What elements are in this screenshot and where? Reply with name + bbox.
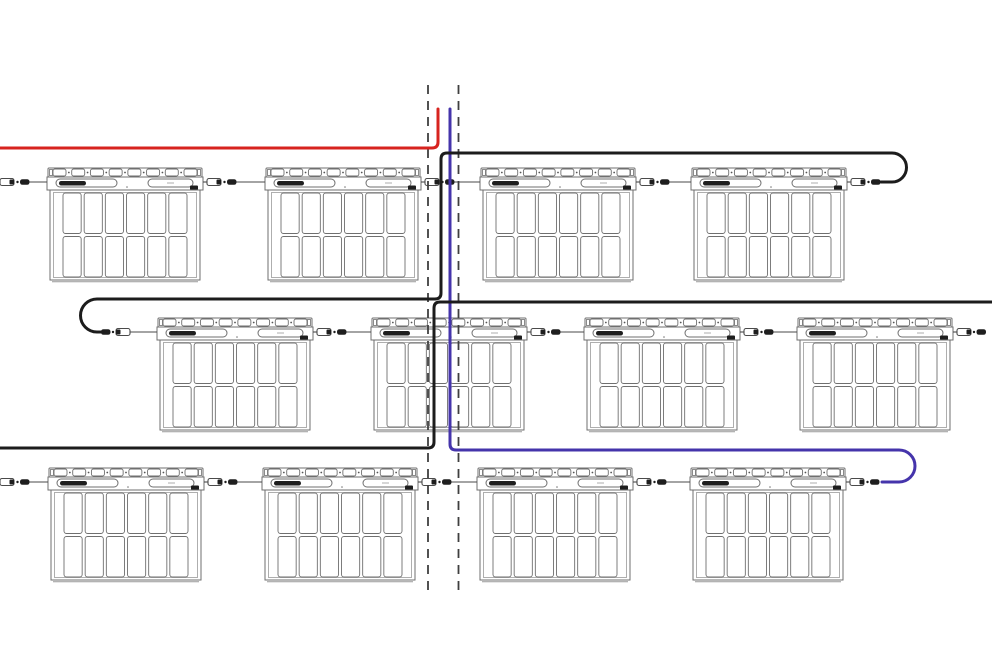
junction-box-label bbox=[489, 481, 516, 486]
pv-cell bbox=[237, 387, 255, 428]
pv-cell bbox=[664, 387, 682, 428]
pv-cell bbox=[877, 343, 895, 384]
pv-cell bbox=[792, 193, 810, 234]
rail-clamp-tab bbox=[539, 469, 552, 476]
pv-cell bbox=[493, 493, 511, 534]
pv-cell bbox=[387, 387, 405, 428]
pv-cell bbox=[496, 237, 514, 278]
pv-cell bbox=[517, 237, 535, 278]
pv-cell bbox=[215, 343, 233, 384]
pv-cell bbox=[127, 193, 145, 234]
pv-cell bbox=[387, 193, 405, 234]
rail-clamp-tab bbox=[53, 169, 66, 176]
mc4-connector-pair bbox=[847, 179, 881, 186]
rail-clamp-tab bbox=[483, 469, 496, 476]
pv-cell bbox=[792, 237, 810, 278]
rail-clamp-tab bbox=[238, 319, 251, 326]
pv-cell bbox=[320, 537, 338, 578]
rail-clamp-tab bbox=[185, 469, 198, 476]
rail-clamp-tab bbox=[91, 469, 104, 476]
pv-cell bbox=[919, 387, 937, 428]
solar-panel bbox=[691, 168, 847, 282]
pv-cell bbox=[194, 387, 212, 428]
mc4-connector-pair bbox=[633, 479, 690, 486]
pv-cell bbox=[898, 343, 916, 384]
rail-clamp-tab bbox=[166, 469, 179, 476]
band-end-block bbox=[834, 186, 842, 191]
mc4-connector-pair bbox=[101, 329, 157, 336]
solar-panel bbox=[690, 468, 846, 582]
pv-cell bbox=[599, 537, 617, 578]
mc4-connector-pair bbox=[527, 329, 584, 336]
rail-clamp-tab bbox=[790, 469, 803, 476]
pv-cell bbox=[600, 343, 618, 384]
pv-cell bbox=[302, 193, 320, 234]
rail-clamp-tab bbox=[184, 169, 197, 176]
pv-cell bbox=[748, 493, 766, 534]
pv-cell bbox=[771, 193, 789, 234]
pv-cell bbox=[855, 343, 873, 384]
rail-clamp-tab bbox=[380, 469, 393, 476]
pv-cell bbox=[557, 493, 575, 534]
rail-clamp-tab bbox=[772, 169, 785, 176]
pv-cell bbox=[834, 387, 852, 428]
pv-cell bbox=[791, 493, 809, 534]
pv-cell bbox=[148, 237, 166, 278]
junction-box-label bbox=[60, 481, 87, 486]
pv-cell bbox=[557, 537, 575, 578]
pv-cell bbox=[514, 493, 532, 534]
mc4-connector-pair bbox=[203, 179, 265, 186]
rail-clamp-tab bbox=[268, 469, 281, 476]
pv-cell bbox=[342, 493, 360, 534]
pv-cell bbox=[64, 537, 82, 578]
rail-clamp-tab bbox=[897, 319, 910, 326]
pv-cell bbox=[706, 493, 724, 534]
rail-clamp-tab bbox=[878, 319, 891, 326]
rail-clamp-tab bbox=[327, 169, 340, 176]
pv-cell bbox=[127, 237, 145, 278]
pv-cell bbox=[493, 387, 511, 428]
band-end-block bbox=[405, 486, 413, 491]
pv-cell bbox=[215, 387, 233, 428]
rail-clamp-tab bbox=[734, 169, 747, 176]
pv-cell bbox=[538, 193, 556, 234]
pv-cell bbox=[877, 387, 895, 428]
rail-clamp-tab bbox=[577, 469, 590, 476]
pv-cell bbox=[621, 343, 639, 384]
junction-box-label bbox=[809, 331, 836, 336]
pv-cell bbox=[599, 493, 617, 534]
pv-cell bbox=[771, 237, 789, 278]
rail-clamp-tab bbox=[598, 169, 611, 176]
band-end-block bbox=[514, 336, 522, 341]
rail-clamp-tab bbox=[396, 319, 409, 326]
rail-clamp-tab bbox=[402, 169, 415, 176]
rail-clamp-tab bbox=[771, 469, 784, 476]
rail-clamp-tab bbox=[377, 319, 390, 326]
junction-box-label bbox=[383, 331, 410, 336]
rail-clamp-tab bbox=[362, 469, 375, 476]
rail-clamp-tab bbox=[489, 319, 502, 326]
pv-cell bbox=[128, 537, 146, 578]
pv-cell bbox=[621, 387, 639, 428]
pv-cell bbox=[472, 387, 490, 428]
rail-clamp-tab bbox=[684, 319, 697, 326]
pv-cell bbox=[345, 193, 363, 234]
pv-cell bbox=[128, 493, 146, 534]
rail-clamp-tab bbox=[803, 319, 816, 326]
band-end-block bbox=[623, 186, 631, 191]
pv-cell bbox=[84, 237, 102, 278]
rail-clamp-tab bbox=[271, 169, 284, 176]
rail-clamp-tab bbox=[627, 319, 640, 326]
pv-cell bbox=[169, 193, 187, 234]
solar-panel bbox=[477, 468, 633, 582]
rail-clamp-tab bbox=[324, 469, 337, 476]
pv-cell bbox=[342, 537, 360, 578]
rail-clamp-tab bbox=[346, 169, 359, 176]
rail-clamp-tab bbox=[827, 469, 840, 476]
mc4-connector-pair bbox=[953, 329, 986, 336]
pv-cell bbox=[173, 387, 191, 428]
pv-cell bbox=[387, 343, 405, 384]
pv-cell bbox=[472, 343, 490, 384]
pv-cell bbox=[149, 537, 167, 578]
solar-panel bbox=[262, 468, 418, 582]
pv-cell bbox=[408, 343, 426, 384]
pv-cell bbox=[602, 193, 620, 234]
rail-clamp-tab bbox=[163, 319, 176, 326]
rail-clamp-tab bbox=[486, 169, 499, 176]
rail-clamp-tab bbox=[808, 469, 821, 476]
rail-clamp-tab bbox=[182, 319, 195, 326]
pv-cell bbox=[514, 537, 532, 578]
pv-cell bbox=[384, 493, 402, 534]
pv-cell bbox=[451, 387, 469, 428]
rail-clamp-tab bbox=[840, 319, 853, 326]
pv-cell bbox=[279, 387, 297, 428]
rail-clamp-tab bbox=[665, 319, 678, 326]
rail-clamp-tab bbox=[165, 169, 178, 176]
pv-cell bbox=[813, 237, 831, 278]
junction-box-label bbox=[59, 181, 86, 186]
pv-cell bbox=[813, 343, 831, 384]
band-end-block bbox=[408, 186, 416, 191]
pv-cell bbox=[493, 537, 511, 578]
pv-cell bbox=[278, 493, 296, 534]
pv-cell bbox=[85, 537, 103, 578]
rail-clamp-tab bbox=[696, 469, 709, 476]
pv-cell bbox=[320, 493, 338, 534]
pv-cell bbox=[727, 537, 745, 578]
pv-cell bbox=[578, 537, 596, 578]
rail-clamp-tab bbox=[109, 169, 122, 176]
rail-clamp-tab bbox=[275, 319, 288, 326]
pv-cell bbox=[194, 343, 212, 384]
pv-cell bbox=[706, 537, 724, 578]
solar-panel bbox=[480, 168, 636, 282]
pv-cell bbox=[727, 493, 745, 534]
pv-cell bbox=[578, 493, 596, 534]
pv-cell bbox=[258, 343, 276, 384]
rail-clamp-tab bbox=[828, 169, 841, 176]
pv-cell bbox=[642, 387, 660, 428]
pv-cell bbox=[602, 237, 620, 278]
rail-clamp-tab bbox=[219, 319, 232, 326]
solar-panel bbox=[48, 468, 204, 582]
pv-cell bbox=[384, 537, 402, 578]
rail-clamp-tab bbox=[617, 169, 630, 176]
rail-clamp-tab bbox=[399, 469, 412, 476]
pv-cell bbox=[279, 343, 297, 384]
pv-cell bbox=[451, 343, 469, 384]
pv-cell bbox=[299, 493, 317, 534]
rail-clamp-tab bbox=[523, 169, 536, 176]
rail-clamp-tab bbox=[542, 169, 555, 176]
rail-clamp-tab bbox=[148, 469, 161, 476]
junction-box-label bbox=[702, 481, 729, 486]
junction-box-label bbox=[169, 331, 196, 336]
band-end-block bbox=[190, 186, 198, 191]
pv-cell bbox=[64, 493, 82, 534]
pv-cell bbox=[685, 387, 703, 428]
pv-cell bbox=[345, 237, 363, 278]
positive-home-run-wire-red bbox=[0, 109, 438, 148]
rail-clamp-tab bbox=[290, 169, 303, 176]
pv-cell bbox=[535, 537, 553, 578]
pv-cell bbox=[517, 193, 535, 234]
pv-cell bbox=[63, 193, 81, 234]
pv-cell bbox=[173, 343, 191, 384]
pv-cell bbox=[106, 493, 124, 534]
rail-clamp-tab bbox=[257, 319, 270, 326]
pv-cell bbox=[538, 237, 556, 278]
pv-cell bbox=[148, 193, 166, 234]
rail-clamp-tab bbox=[614, 469, 627, 476]
rail-clamp-tab bbox=[343, 469, 356, 476]
rail-clamp-tab bbox=[54, 469, 67, 476]
pv-cell bbox=[642, 343, 660, 384]
solar-panel bbox=[47, 168, 203, 282]
pv-cell bbox=[366, 193, 384, 234]
pv-cell bbox=[366, 237, 384, 278]
pv-cell bbox=[106, 537, 124, 578]
rail-clamp-tab bbox=[72, 169, 85, 176]
band-end-block bbox=[727, 336, 735, 341]
junction-box-label bbox=[274, 481, 301, 486]
band-end-block bbox=[620, 486, 628, 491]
rail-clamp-tab bbox=[452, 319, 465, 326]
rail-clamp-tab bbox=[590, 319, 603, 326]
rail-clamp-tab bbox=[791, 169, 804, 176]
junction-box-label bbox=[277, 181, 304, 186]
mc4-connector-pair bbox=[0, 179, 47, 186]
mc4-connector-pair bbox=[204, 479, 262, 486]
pv-cell bbox=[105, 237, 123, 278]
rail-clamp-tab bbox=[110, 469, 123, 476]
rail-clamp-tab bbox=[287, 469, 300, 476]
rail-clamp-tab bbox=[934, 319, 947, 326]
rail-clamp-tab bbox=[294, 319, 307, 326]
mc4-connector-pair bbox=[740, 329, 797, 336]
pv-cell bbox=[770, 493, 788, 534]
pv-cell bbox=[299, 537, 317, 578]
band-end-block bbox=[940, 336, 948, 341]
pv-cell bbox=[728, 193, 746, 234]
mc4-connector-pair bbox=[313, 329, 371, 336]
pv-cell bbox=[812, 537, 830, 578]
mc4-connector-pair bbox=[0, 479, 48, 486]
pv-cell bbox=[63, 237, 81, 278]
rail-clamp-tab bbox=[520, 469, 533, 476]
band-end-block bbox=[191, 486, 199, 491]
pv-cell bbox=[919, 343, 937, 384]
pv-cell bbox=[323, 237, 341, 278]
pv-cell bbox=[685, 343, 703, 384]
mc4-connector-pair bbox=[846, 479, 880, 486]
pv-cell bbox=[706, 343, 724, 384]
pv-cell bbox=[706, 387, 724, 428]
pv-cell bbox=[149, 493, 167, 534]
pv-cell bbox=[581, 193, 599, 234]
pv-cell bbox=[278, 537, 296, 578]
solar-panel bbox=[584, 318, 740, 432]
pv-cell bbox=[707, 193, 725, 234]
pv-cell bbox=[600, 387, 618, 428]
wiring-diagram-canvas bbox=[0, 0, 992, 650]
pv-cell bbox=[770, 537, 788, 578]
rail-clamp-tab bbox=[383, 169, 396, 176]
rail-clamp-tab bbox=[859, 319, 872, 326]
rail-clamp-tab bbox=[715, 469, 728, 476]
rail-clamp-tab bbox=[90, 169, 103, 176]
band-end-block bbox=[833, 486, 841, 491]
solar-panel bbox=[265, 168, 421, 282]
rail-clamp-tab bbox=[561, 169, 574, 176]
rail-clamp-tab bbox=[753, 169, 766, 176]
mc4-connector-pair bbox=[418, 479, 477, 486]
rail-clamp-tab bbox=[471, 319, 484, 326]
pv-wiring-diagram bbox=[0, 0, 992, 650]
pv-cell bbox=[387, 237, 405, 278]
pv-cell bbox=[105, 193, 123, 234]
rail-clamp-tab bbox=[721, 319, 734, 326]
pv-cell bbox=[170, 537, 188, 578]
rail-clamp-tab bbox=[73, 469, 86, 476]
pv-cell bbox=[84, 193, 102, 234]
rail-clamp-tab bbox=[595, 469, 608, 476]
rail-clamp-tab bbox=[308, 169, 321, 176]
rail-clamp-tab bbox=[502, 469, 515, 476]
junction-box-label bbox=[703, 181, 730, 186]
mc4-connector-pair bbox=[636, 179, 691, 186]
pv-cell bbox=[323, 193, 341, 234]
pv-cell bbox=[855, 387, 873, 428]
pv-cell bbox=[429, 387, 447, 428]
pv-cell bbox=[748, 537, 766, 578]
pv-cell bbox=[429, 343, 447, 384]
rail-clamp-tab bbox=[508, 319, 521, 326]
pv-cell bbox=[560, 237, 578, 278]
pv-cell bbox=[581, 237, 599, 278]
pv-cell bbox=[363, 537, 381, 578]
rail-clamp-tab bbox=[915, 319, 928, 326]
solar-panel bbox=[797, 318, 953, 432]
band-end-block bbox=[300, 336, 308, 341]
rail-clamp-tab bbox=[702, 319, 715, 326]
rail-clamp-tab bbox=[128, 169, 141, 176]
rail-clamp-tab bbox=[733, 469, 746, 476]
panels-layer bbox=[47, 168, 953, 582]
rail-clamp-tab bbox=[505, 169, 518, 176]
junction-box-label bbox=[492, 181, 519, 186]
pv-cell bbox=[813, 193, 831, 234]
rail-clamp-tab bbox=[822, 319, 835, 326]
pv-cell bbox=[363, 493, 381, 534]
rail-clamp-tab bbox=[716, 169, 729, 176]
pv-cell bbox=[664, 343, 682, 384]
pv-cell bbox=[560, 193, 578, 234]
pv-cell bbox=[169, 237, 187, 278]
pv-cell bbox=[496, 193, 514, 234]
rail-clamp-tab bbox=[414, 319, 427, 326]
rail-clamp-tab bbox=[129, 469, 142, 476]
rail-clamp-tab bbox=[697, 169, 710, 176]
pv-cell bbox=[749, 193, 767, 234]
pv-cell bbox=[281, 237, 299, 278]
solar-panel bbox=[157, 318, 313, 432]
rail-clamp-tab bbox=[752, 469, 765, 476]
pv-cell bbox=[258, 387, 276, 428]
pv-cell bbox=[707, 237, 725, 278]
rail-clamp-tab bbox=[305, 469, 318, 476]
rail-clamp-tab bbox=[558, 469, 571, 476]
rail-clamp-tab bbox=[609, 319, 622, 326]
pv-cell bbox=[898, 387, 916, 428]
pv-cell bbox=[791, 537, 809, 578]
rail-clamp-tab bbox=[580, 169, 593, 176]
pv-cell bbox=[812, 493, 830, 534]
junction-box-label bbox=[596, 331, 623, 336]
pv-cell bbox=[85, 493, 103, 534]
pv-cell bbox=[170, 493, 188, 534]
pv-cell bbox=[749, 237, 767, 278]
rail-clamp-tab bbox=[809, 169, 822, 176]
pv-cell bbox=[535, 493, 553, 534]
rail-clamp-tab bbox=[646, 319, 659, 326]
pv-cell bbox=[281, 193, 299, 234]
pv-cell bbox=[237, 343, 255, 384]
pv-cell bbox=[834, 343, 852, 384]
pv-cell bbox=[302, 237, 320, 278]
rail-clamp-tab bbox=[200, 319, 213, 326]
rail-clamp-tab bbox=[365, 169, 378, 176]
pv-cell bbox=[813, 387, 831, 428]
pv-cell bbox=[408, 387, 426, 428]
pv-cell bbox=[728, 237, 746, 278]
pv-cell bbox=[493, 343, 511, 384]
rail-clamp-tab bbox=[147, 169, 160, 176]
